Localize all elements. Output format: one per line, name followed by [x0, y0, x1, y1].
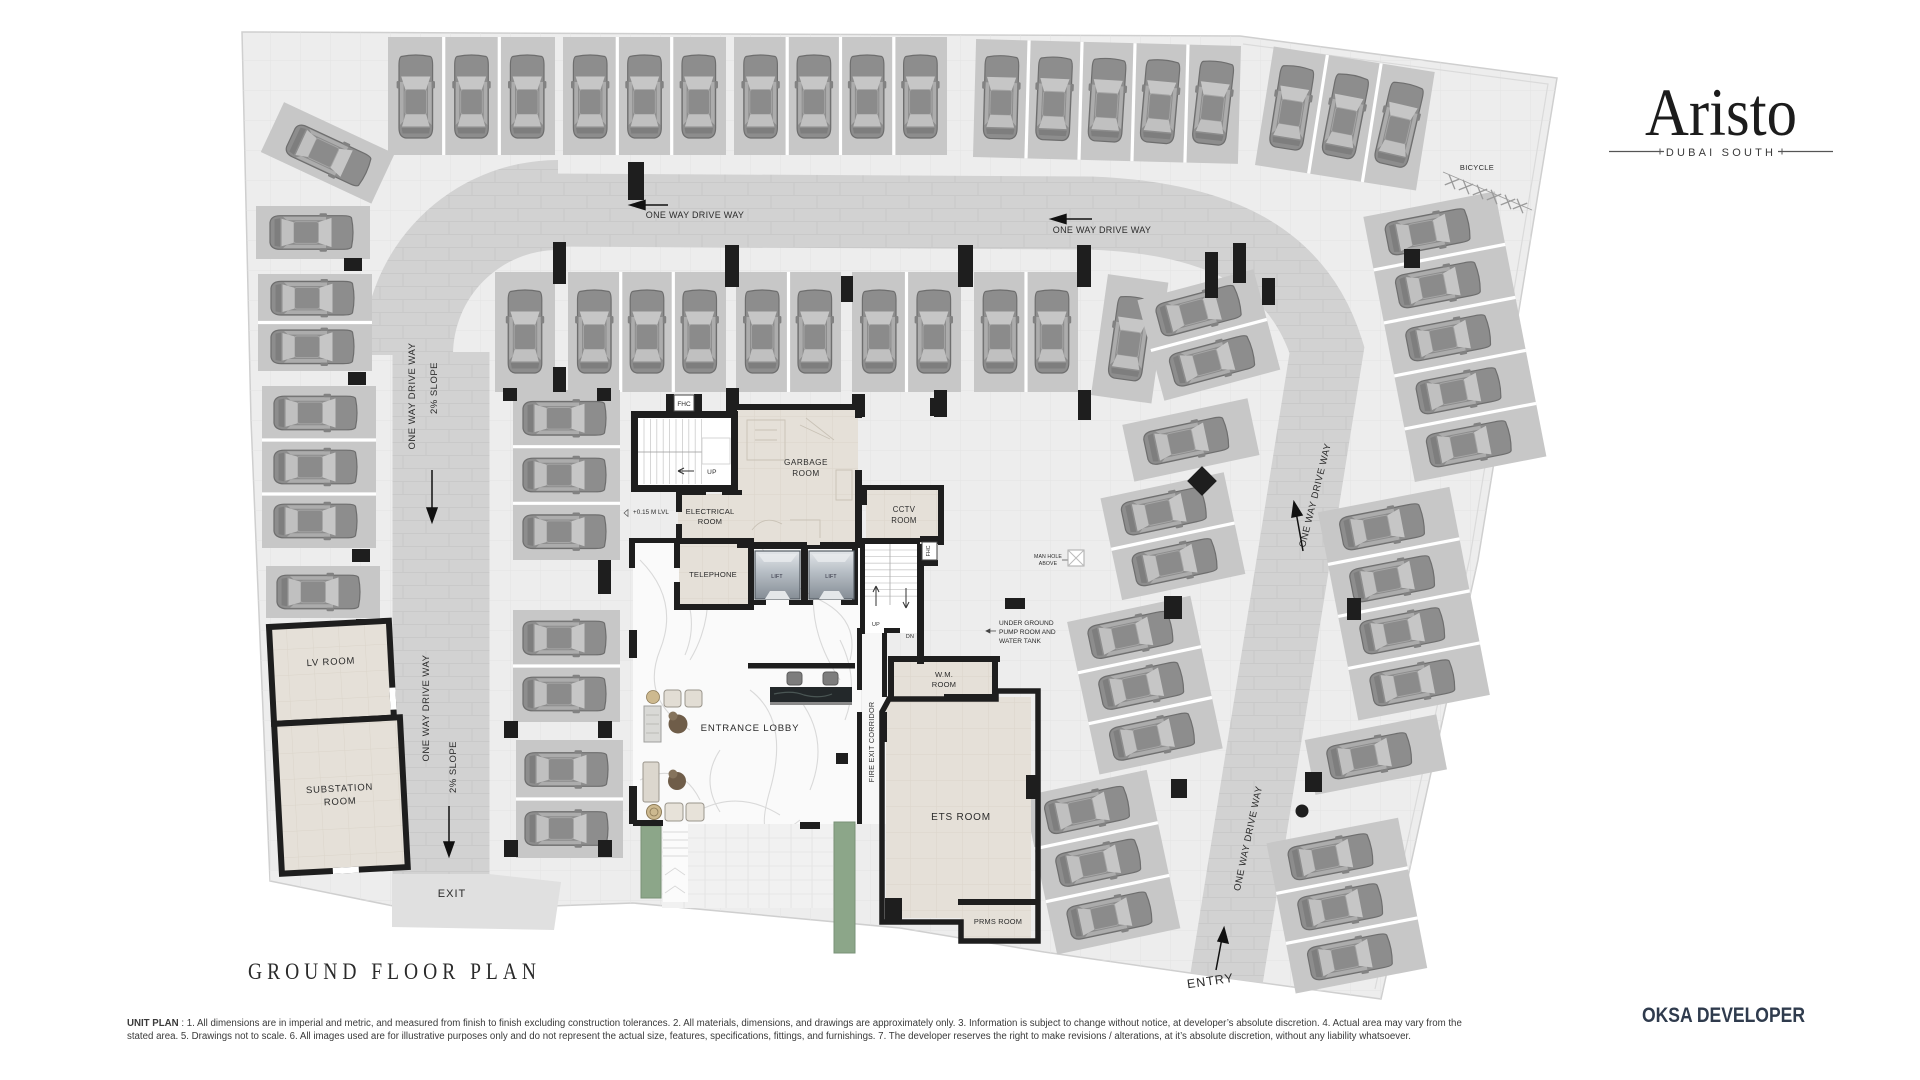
- svg-text:FHC: FHC: [677, 401, 691, 408]
- svg-text:FIRE EXIT CORRIDOR: FIRE EXIT CORRIDOR: [867, 702, 876, 783]
- svg-text:LIFT: LIFT: [825, 574, 837, 580]
- svg-text:UNIT PLAN : 1. All dimensions: UNIT PLAN : 1. All dimensions are in imp…: [127, 1018, 1462, 1029]
- svg-text:GARBAGE: GARBAGE: [784, 458, 828, 467]
- svg-text:2% SLOPE: 2% SLOPE: [448, 741, 459, 793]
- svg-text:ONE WAY DRIVE WAY: ONE WAY DRIVE WAY: [1053, 225, 1151, 235]
- svg-text:ROOM: ROOM: [324, 796, 357, 809]
- svg-text:FHC: FHC: [926, 545, 932, 556]
- svg-text:WATER TANK: WATER TANK: [999, 638, 1041, 645]
- svg-text:ROOM: ROOM: [891, 516, 916, 525]
- svg-text:UP: UP: [707, 469, 717, 476]
- svg-text:LIFT: LIFT: [771, 574, 783, 580]
- svg-text:ONE WAY DRIVE WAY: ONE WAY DRIVE WAY: [407, 342, 418, 449]
- svg-text:PRMS ROOM: PRMS ROOM: [974, 917, 1022, 926]
- svg-text:W.M.: W.M.: [935, 670, 953, 679]
- svg-text:PUMP ROOM AND: PUMP ROOM AND: [999, 629, 1056, 636]
- svg-text:stated area. 5. Drawings not t: stated area. 5. Drawings not to scale. 6…: [127, 1031, 1411, 1042]
- svg-text:ENTRANCE LOBBY: ENTRANCE LOBBY: [701, 723, 800, 734]
- svg-text:TELEPHONE: TELEPHONE: [689, 570, 737, 579]
- svg-text:ONE WAY DRIVE WAY: ONE WAY DRIVE WAY: [421, 654, 432, 761]
- svg-text:BICYCLE: BICYCLE: [1460, 163, 1494, 172]
- svg-text:MAN HOLE: MAN HOLE: [1034, 554, 1062, 560]
- svg-text:EXIT: EXIT: [438, 888, 466, 900]
- svg-text:ONE WAY DRIVE WAY: ONE WAY DRIVE WAY: [646, 210, 744, 220]
- svg-text:UNDER GROUND: UNDER GROUND: [999, 620, 1054, 627]
- svg-text:CCTV: CCTV: [893, 505, 916, 514]
- svg-text:ROOM: ROOM: [698, 517, 722, 526]
- svg-text:ABOVE: ABOVE: [1039, 561, 1058, 567]
- svg-text:ROOM: ROOM: [792, 469, 819, 478]
- svg-text:+0.15 M LVL: +0.15 M LVL: [633, 509, 669, 516]
- svg-text:UP: UP: [872, 622, 880, 628]
- svg-text:ETS ROOM: ETS ROOM: [931, 812, 991, 823]
- svg-text:GROUND FLOOR PLAN: GROUND FLOOR PLAN: [248, 959, 541, 985]
- svg-text:DN: DN: [906, 634, 914, 640]
- svg-text:ROOM: ROOM: [932, 680, 956, 689]
- svg-text:DUBAI SOUTH: DUBAI SOUTH: [1666, 147, 1776, 159]
- svg-text:OKSA DEVELOPER: OKSA DEVELOPER: [1642, 1004, 1805, 1027]
- svg-text:2% SLOPE: 2% SLOPE: [429, 362, 440, 414]
- svg-text:ELECTRICAL: ELECTRICAL: [686, 507, 735, 516]
- svg-text:Aristo: Aristo: [1645, 74, 1797, 150]
